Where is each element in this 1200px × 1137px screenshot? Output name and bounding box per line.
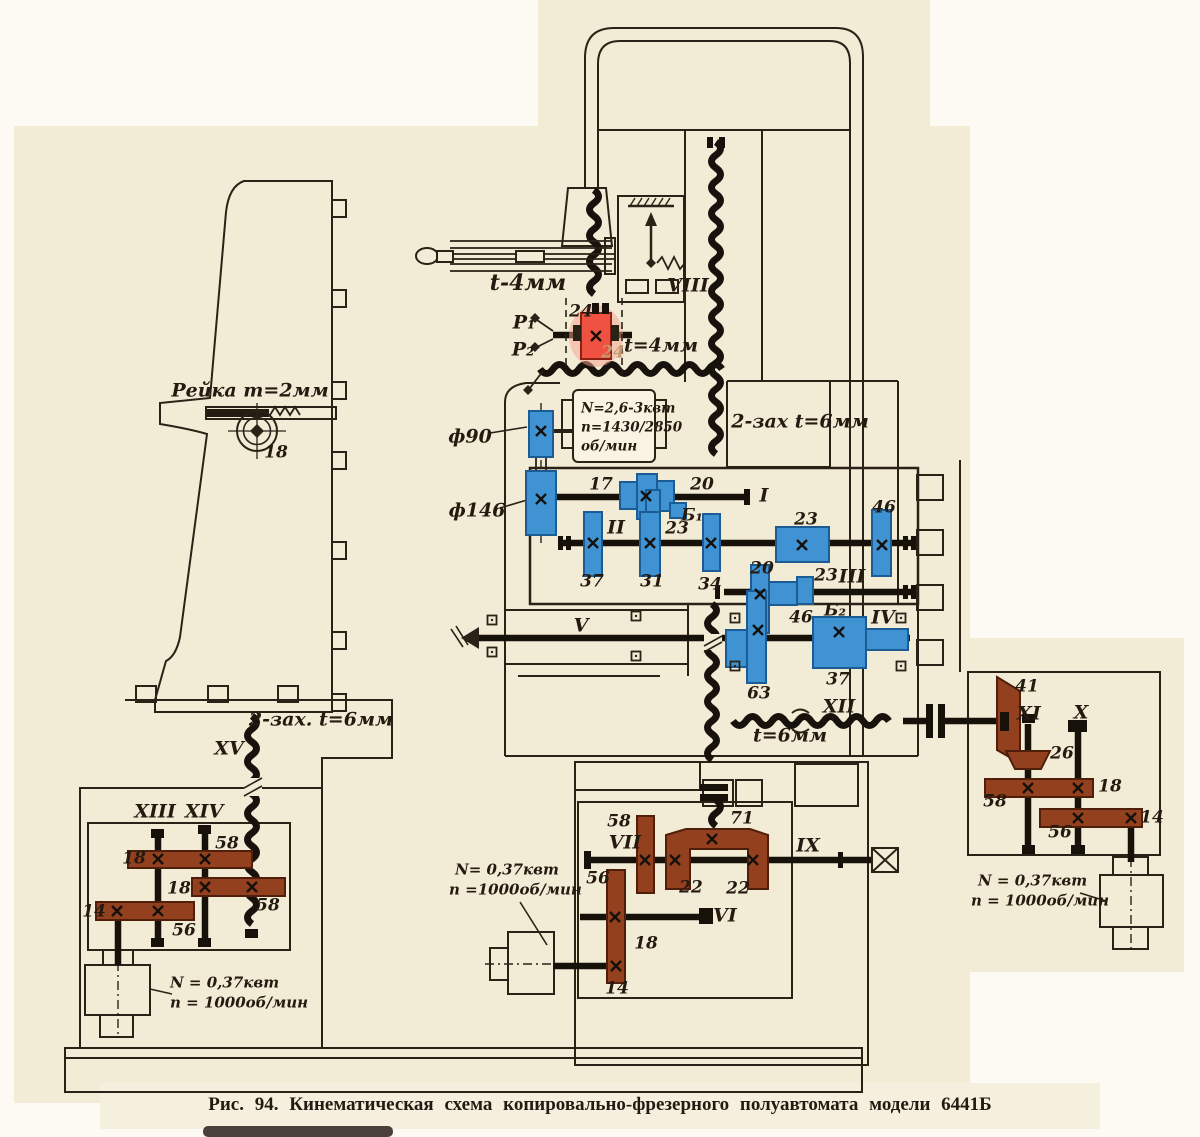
gear-count-label: 37	[580, 574, 604, 591]
shaft-numeral: II	[607, 519, 625, 538]
annotation: ф146	[449, 502, 506, 521]
shaft-numeral: XI	[1017, 705, 1041, 724]
gear-count-label: 14	[82, 904, 106, 921]
gear-count-label: 20	[750, 561, 774, 578]
shaft-numeral: VI	[713, 907, 737, 926]
annotation: P₂	[512, 341, 535, 360]
motor-spec-line: N = 0,37квт	[170, 976, 279, 991]
gear-count-label: 56	[586, 871, 610, 888]
annotation: 2-зах. t=6мм	[249, 711, 393, 730]
annotation: t=4мм	[624, 337, 698, 356]
figure-canvas: IIIIIIIVVVIVIIVIIIIXXXIXIIXIIIXIVXV1720Б…	[0, 0, 1200, 1137]
gear-count-label: 56	[172, 923, 196, 940]
annotation: t-4мм	[490, 272, 566, 294]
shaft-numeral: III	[839, 568, 866, 587]
gear-count-label: 46	[872, 500, 896, 517]
annotation: t=6мм	[753, 727, 827, 746]
gear-count-label: 22	[726, 881, 750, 898]
gear-count-label: 58	[215, 836, 239, 853]
gear-count-label: 18	[167, 881, 191, 898]
gear-count-label: 41	[1015, 679, 1039, 696]
gear-count-label: 58	[983, 794, 1007, 811]
annotation: ф90	[448, 428, 492, 447]
gear-count-label: 31	[640, 574, 664, 591]
gear-count-label: 26	[1050, 746, 1074, 763]
annotation: 2-зах t=6мм	[731, 413, 869, 432]
gear-count-label: 18	[264, 445, 288, 462]
gear-count-label: 18	[634, 936, 658, 953]
gear-count-label: 23	[794, 512, 818, 529]
gear-count-label: 18	[122, 851, 146, 868]
figure-caption: Рис. 94. Кинематическая схема копироваль…	[120, 1094, 1080, 1116]
gear-count-label: 24	[569, 304, 593, 321]
gear-count-label: 14	[605, 981, 629, 998]
shaft-numeral: IV	[871, 609, 895, 628]
shaft-numeral: X	[1074, 704, 1089, 723]
motor-spec-line: n =1000об/мин	[449, 883, 582, 898]
gear-count-label: 58	[607, 814, 631, 831]
gear-count-label: 22	[679, 880, 703, 897]
shaft-numeral: VIII	[667, 277, 708, 296]
gear-count-label: 46	[789, 610, 813, 627]
gear-count-label: 58	[256, 898, 280, 915]
motor-spec-line: об/мин	[581, 440, 637, 454]
gear-count-label: 24	[601, 345, 625, 362]
gear-count-label: 37	[826, 672, 850, 689]
shaft-numeral: VII	[609, 834, 642, 853]
gear-count-label: 14	[1140, 810, 1164, 827]
annotation: P₁	[513, 314, 536, 333]
scan-artifact	[203, 1126, 393, 1137]
gear-count-label: Б₂	[824, 603, 846, 620]
gear-count-label: 17	[589, 477, 613, 494]
gear-count-label: 23	[665, 521, 689, 538]
gear-count-label: 71	[730, 811, 754, 828]
gear-count-label: 34	[698, 577, 722, 594]
shaft-numeral: XII	[823, 698, 856, 717]
motor-spec-line: n=1430/2850	[581, 421, 682, 435]
motor-spec-line: n = 1000об/мин	[170, 996, 308, 1011]
motor-spec-line: N=2,6-3квт	[581, 402, 675, 416]
annotation-layer: IIIIIIIVVVIVIIVIIIIXXXIXIIXIIIXIVXV1720Б…	[0, 0, 1200, 1137]
shaft-numeral: XIII	[134, 803, 175, 822]
shaft-numeral: IX	[796, 837, 820, 856]
gear-count-label: 63	[747, 686, 771, 703]
gear-count-label: 20	[690, 477, 714, 494]
shaft-numeral: XV	[214, 740, 243, 759]
motor-spec-line: n = 1000об/мин	[971, 894, 1109, 909]
annotation: Рейка m=2мм	[171, 382, 328, 401]
gear-count-label: 23	[814, 568, 838, 585]
motor-spec-line: N= 0,37квт	[455, 863, 559, 878]
shaft-numeral: XIV	[185, 803, 223, 822]
motor-spec-line: N = 0,37квт	[978, 874, 1087, 889]
gear-count-label: 18	[1098, 779, 1122, 796]
gear-count-label: 56	[1048, 825, 1072, 842]
shaft-numeral: I	[760, 487, 769, 506]
shaft-numeral: V	[574, 617, 589, 636]
